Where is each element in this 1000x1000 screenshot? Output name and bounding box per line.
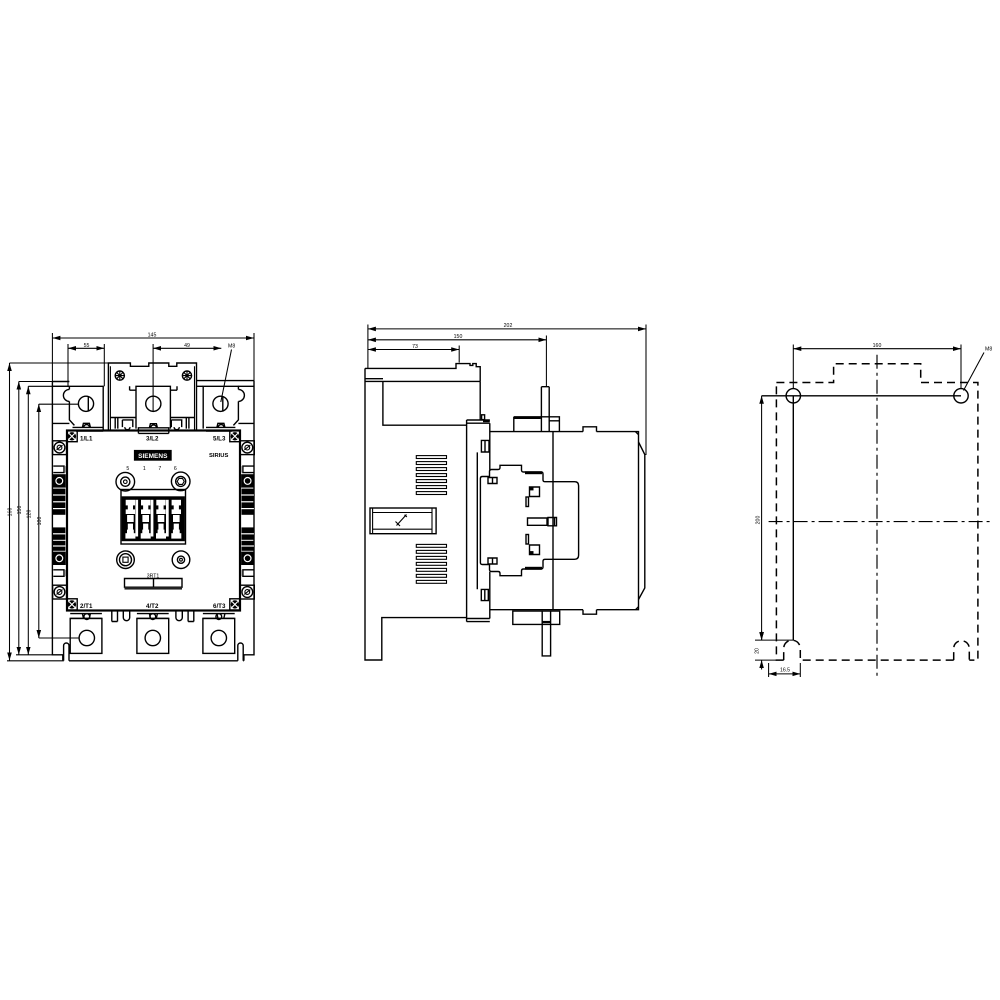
svg-text:55: 55 <box>84 343 90 349</box>
svg-text:3/L2: 3/L2 <box>146 436 159 443</box>
svg-text:150: 150 <box>17 506 23 515</box>
svg-text:100: 100 <box>37 517 43 526</box>
svg-text:6: 6 <box>174 466 177 472</box>
svg-text:5/L3: 5/L3 <box>213 436 226 443</box>
svg-text:202: 202 <box>504 323 513 329</box>
svg-text:7: 7 <box>158 466 161 472</box>
svg-text:145: 145 <box>148 333 157 339</box>
svg-text:6/T3: 6/T3 <box>213 603 226 610</box>
svg-text:160: 160 <box>8 508 14 517</box>
svg-text:73: 73 <box>412 344 418 350</box>
svg-text:5: 5 <box>126 466 129 472</box>
svg-text:20: 20 <box>755 648 761 654</box>
svg-text:200: 200 <box>756 516 762 525</box>
svg-text:1/L1: 1/L1 <box>80 436 93 443</box>
svg-text:M8: M8 <box>228 344 235 350</box>
svg-text:150: 150 <box>454 334 463 340</box>
svg-text:2/T1: 2/T1 <box>80 603 93 610</box>
svg-text:M8: M8 <box>985 347 992 353</box>
svg-text:1: 1 <box>143 466 146 472</box>
svg-text:49: 49 <box>184 343 190 349</box>
svg-text:SIEMENS: SIEMENS <box>138 453 168 460</box>
svg-text:4/T2: 4/T2 <box>146 603 159 610</box>
svg-text:160: 160 <box>873 343 882 349</box>
svg-text:16.5: 16.5 <box>780 668 790 674</box>
svg-text:120: 120 <box>26 510 32 519</box>
svg-text:SIRIUS: SIRIUS <box>209 453 228 459</box>
